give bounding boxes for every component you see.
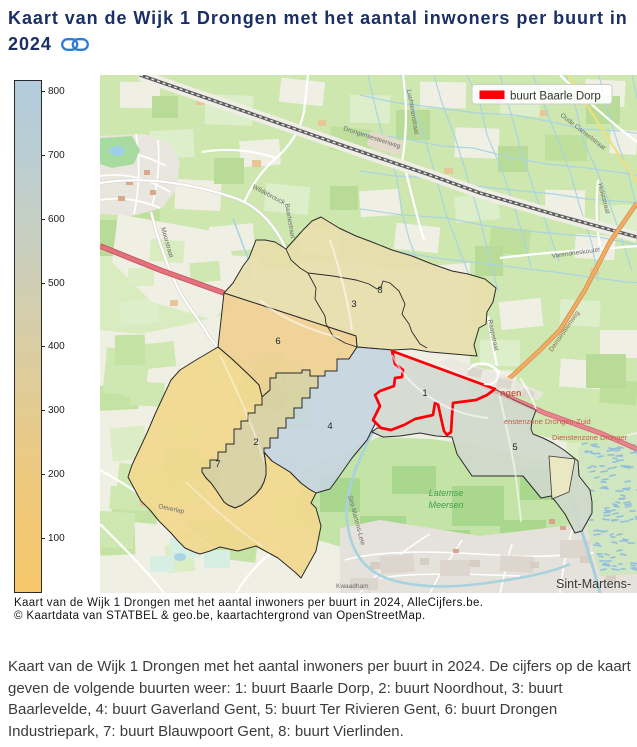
svg-text:1: 1 (422, 388, 427, 399)
svg-text:7: 7 (215, 459, 220, 470)
svg-text:Latemse: Latemse (429, 488, 464, 498)
svg-text:3: 3 (351, 299, 356, 310)
svg-text:ngen: ngen (500, 388, 522, 398)
svg-text:5: 5 (512, 442, 517, 453)
svg-text:8: 8 (377, 285, 382, 296)
svg-text:enstenzone Drongen-Zuid: enstenzone Drongen-Zuid (504, 417, 591, 426)
svg-text:2: 2 (253, 437, 258, 448)
svg-text:6: 6 (275, 336, 280, 347)
svg-text:Meersen: Meersen (428, 500, 463, 510)
svg-text:Dienstenzone Dronger: Dienstenzone Dronger (552, 433, 628, 442)
svg-text:4: 4 (327, 421, 332, 432)
svg-text:buurt Baarle Dorp: buurt Baarle Dorp (510, 91, 601, 103)
svg-text:Sint-Martens-: Sint-Martens- (556, 577, 631, 591)
svg-text:Kwaadham: Kwaadham (336, 583, 369, 590)
